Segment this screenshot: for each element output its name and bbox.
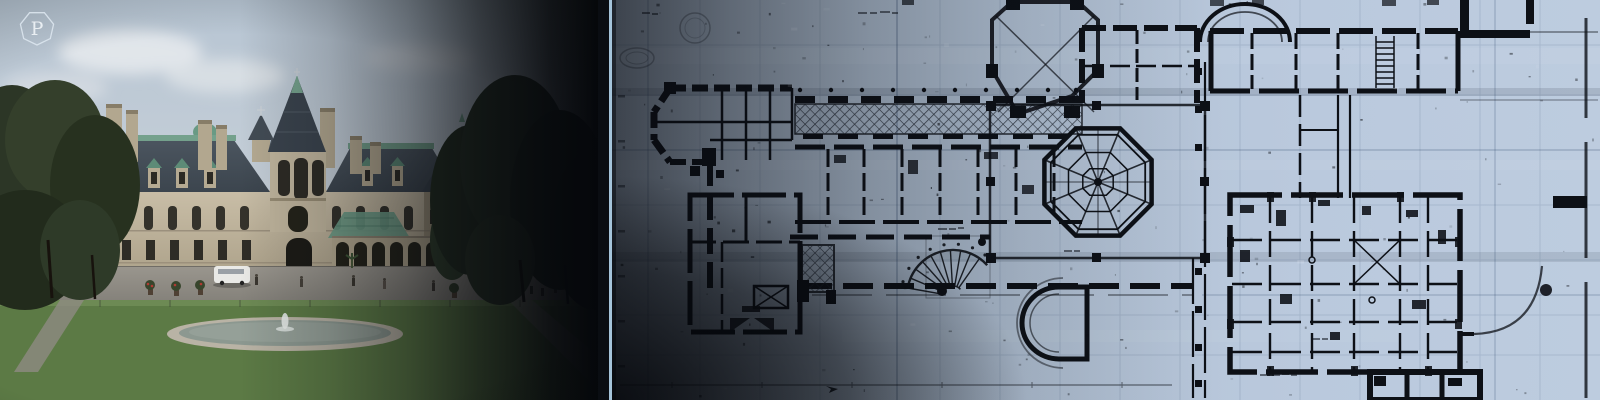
brand-letter: P	[31, 18, 44, 40]
floorplan-drawing	[612, 0, 1600, 400]
divider-band	[598, 0, 609, 400]
estate-photo	[0, 0, 598, 400]
estate-photo-panel	[0, 0, 598, 400]
octagon-skylight	[1044, 128, 1152, 236]
fountain-jet	[282, 313, 289, 329]
brand-badge[interactable]: P	[18, 8, 56, 48]
shuttle-bus	[213, 266, 251, 288]
hero-banner: P	[0, 0, 1600, 400]
floorplan-panel	[612, 0, 1600, 400]
heptagon-logo[interactable]: P	[18, 8, 56, 48]
